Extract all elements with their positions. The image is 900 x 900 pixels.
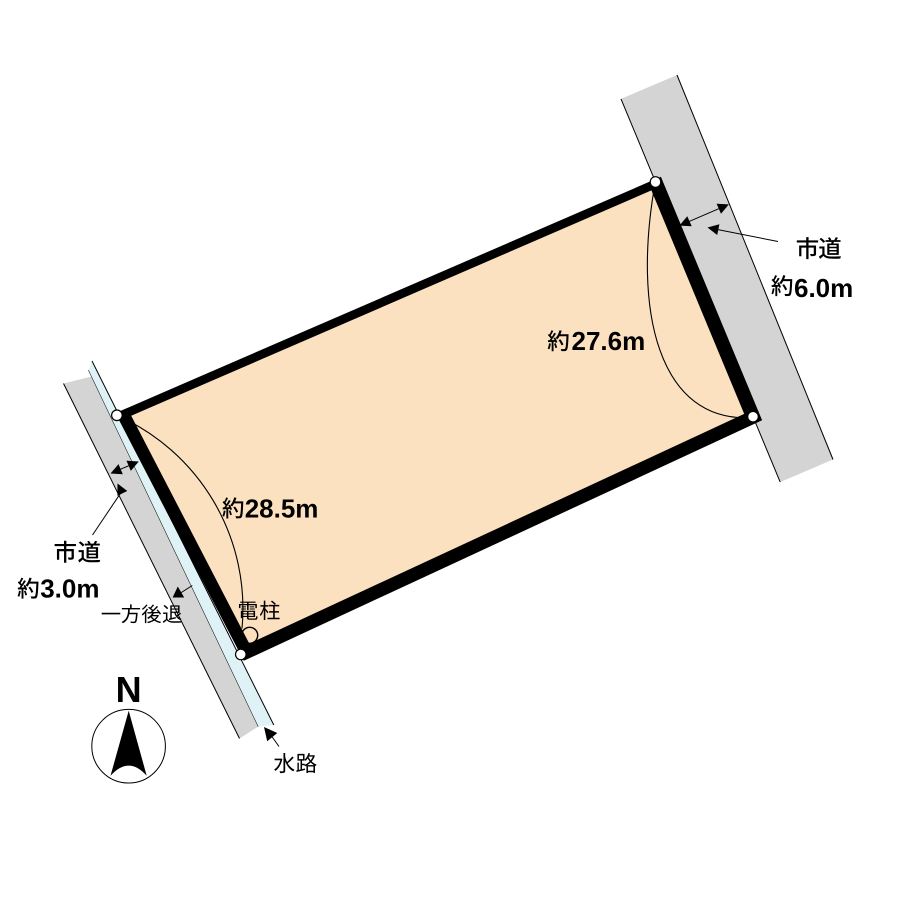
svg-text:28.5m: 28.5m (245, 493, 319, 523)
svg-text:3.0m: 3.0m (40, 573, 99, 603)
svg-text:N: N (116, 669, 142, 710)
svg-text:6.0m: 6.0m (794, 273, 853, 303)
svg-text:27.6m: 27.6m (572, 326, 646, 356)
